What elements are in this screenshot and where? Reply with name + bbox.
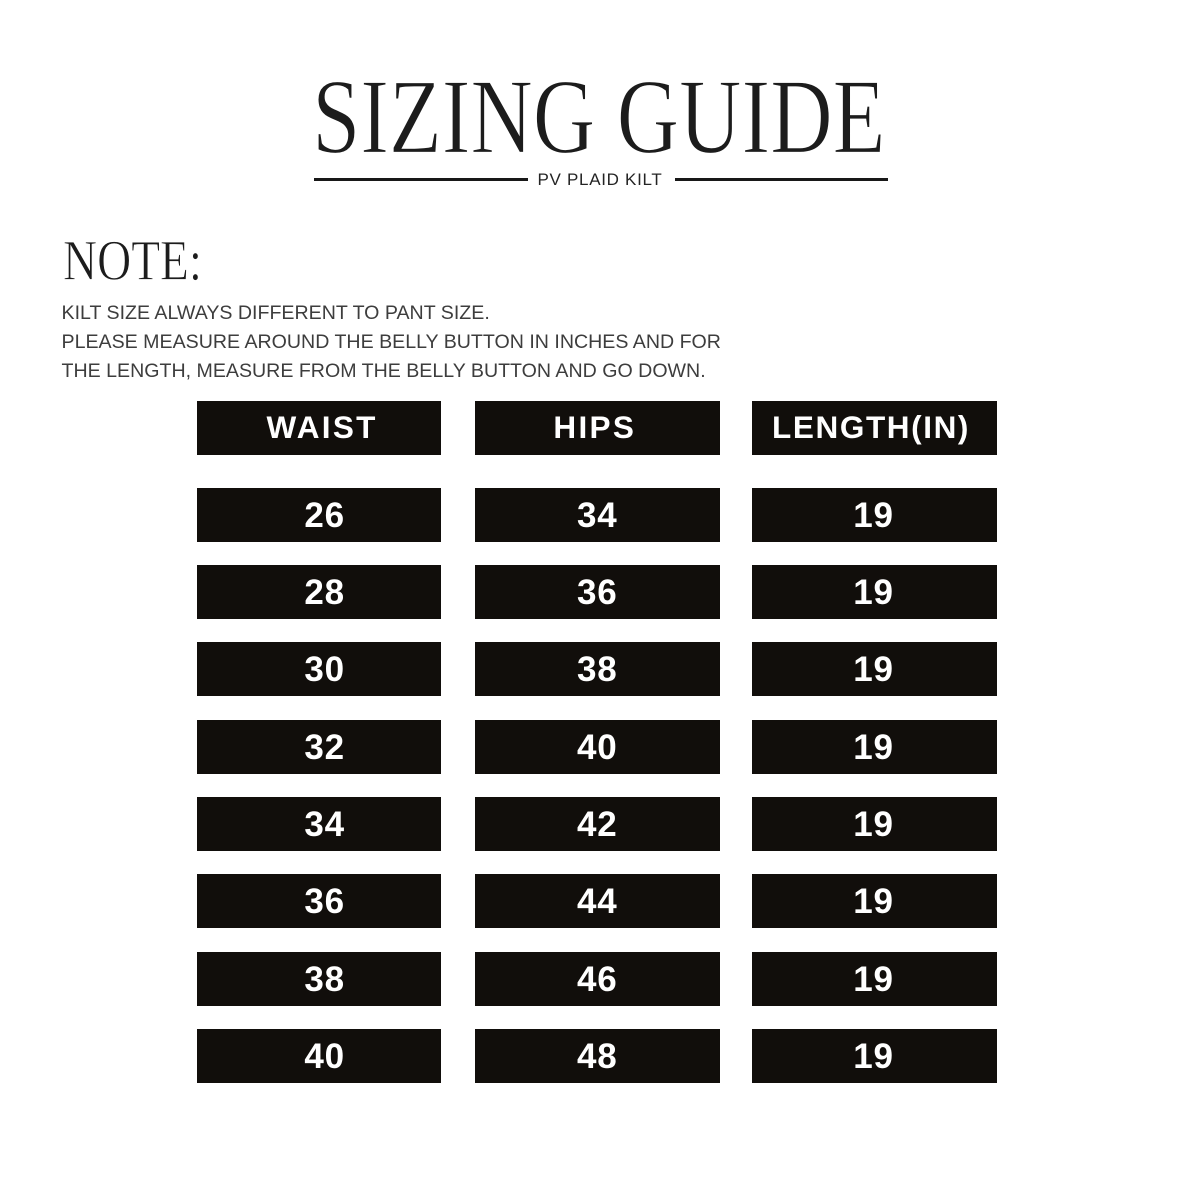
svg-text:NOTE:: NOTE: — [63, 229, 202, 292]
svg-text:SIZING GUIDE: SIZING GUIDE — [312, 58, 885, 176]
